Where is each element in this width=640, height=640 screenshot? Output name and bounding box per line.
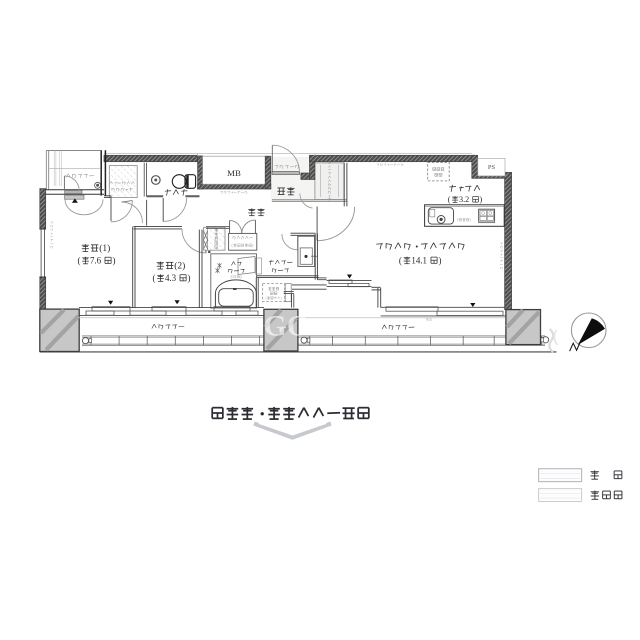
svg-text:915: 915 — [426, 318, 432, 322]
svg-text:(1): (1) — [99, 243, 110, 254]
svg-text:PS: PS — [488, 164, 496, 171]
svg-text:(2): (2) — [174, 261, 185, 272]
svg-text:): ) — [187, 273, 190, 283]
svg-text:(: ( — [399, 255, 402, 265]
svg-text:14.1: 14.1 — [411, 255, 427, 265]
svg-text:7.6: 7.6 — [90, 255, 102, 265]
svg-text:): ) — [281, 296, 282, 300]
svg-text:): ) — [480, 195, 483, 204]
svg-text:4.3: 4.3 — [165, 273, 177, 283]
svg-text:(1316): (1316) — [231, 274, 243, 279]
svg-text:): ) — [438, 255, 441, 265]
svg-text:(: ( — [152, 273, 155, 283]
svg-text:): ) — [112, 255, 115, 265]
svg-text:(: ( — [448, 195, 451, 204]
svg-text:(: ( — [77, 255, 80, 265]
svg-text:MB: MB — [227, 168, 241, 178]
svg-text:3.2: 3.2 — [459, 195, 469, 204]
